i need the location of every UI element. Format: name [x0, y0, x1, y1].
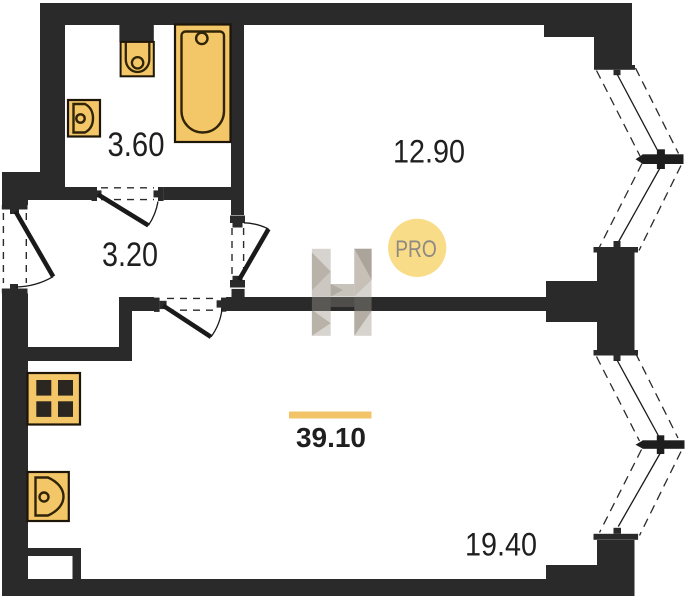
- svg-text:PRO: PRO: [395, 236, 437, 263]
- svg-text:19.40: 19.40: [465, 527, 537, 563]
- svg-text:3.60: 3.60: [108, 126, 165, 164]
- svg-text:12.90: 12.90: [393, 134, 465, 170]
- svg-text:3.20: 3.20: [102, 236, 158, 274]
- svg-text:39.10: 39.10: [296, 422, 366, 453]
